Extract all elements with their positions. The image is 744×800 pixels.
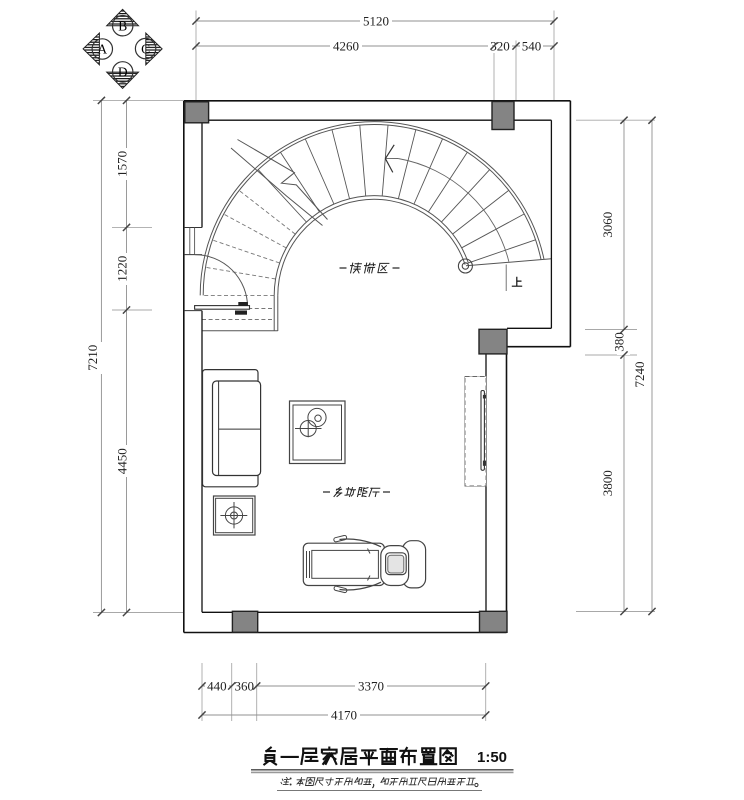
svg-text:3060: 3060 bbox=[600, 212, 615, 238]
svg-text:380: 380 bbox=[612, 332, 627, 352]
svg-text:4170: 4170 bbox=[331, 708, 357, 723]
svg-text:7210: 7210 bbox=[85, 345, 100, 371]
svg-text:4260: 4260 bbox=[333, 39, 359, 54]
svg-text:3800: 3800 bbox=[600, 470, 615, 496]
svg-text:1570: 1570 bbox=[115, 151, 130, 177]
svg-text:360: 360 bbox=[234, 679, 254, 694]
svg-text:A: A bbox=[97, 42, 107, 57]
svg-text:C: C bbox=[141, 41, 150, 56]
svg-text:7240: 7240 bbox=[632, 362, 647, 388]
svg-text:D: D bbox=[118, 65, 128, 80]
svg-text:4450: 4450 bbox=[115, 448, 130, 474]
svg-text:1220: 1220 bbox=[115, 256, 130, 282]
svg-text:5120: 5120 bbox=[363, 14, 389, 29]
svg-text:B: B bbox=[118, 18, 127, 33]
svg-text:3370: 3370 bbox=[358, 679, 384, 694]
svg-text:540: 540 bbox=[522, 39, 542, 54]
svg-text:1:50: 1:50 bbox=[477, 749, 507, 766]
svg-text:440: 440 bbox=[207, 679, 227, 694]
